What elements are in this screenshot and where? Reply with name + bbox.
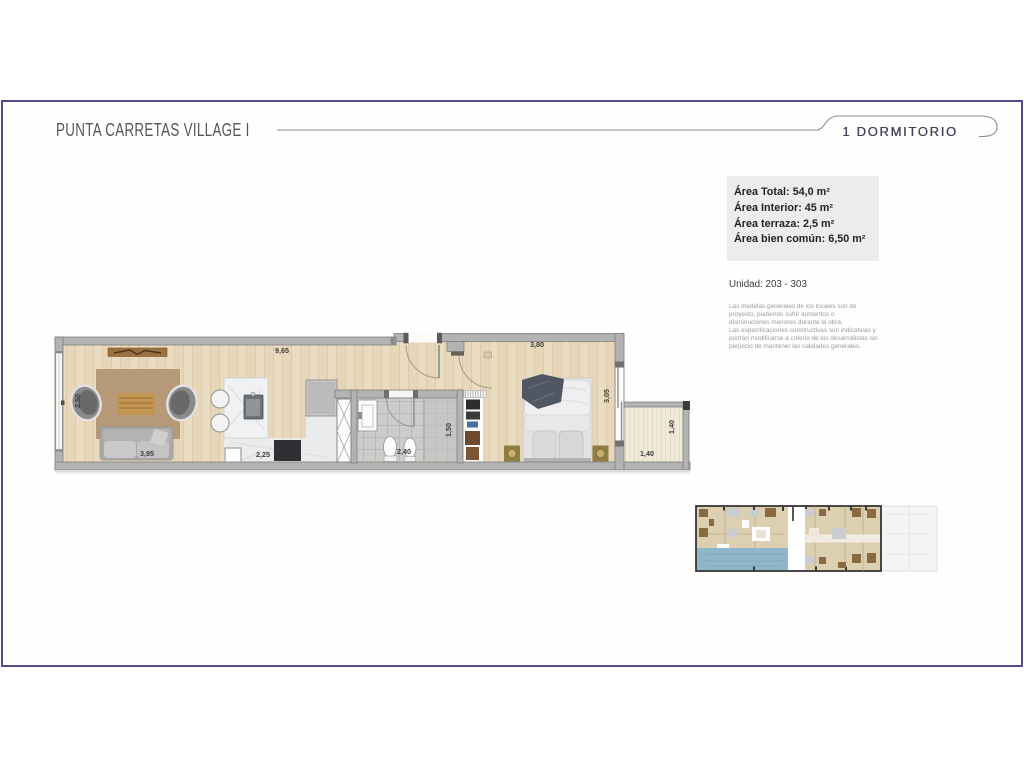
- svg-text:1,40: 1,40: [667, 420, 676, 434]
- svg-text:1,50: 1,50: [444, 423, 453, 437]
- svg-text:3,80: 3,80: [530, 340, 544, 349]
- svg-text:3,05: 3,05: [602, 389, 611, 403]
- svg-text:2,25: 2,25: [256, 450, 270, 459]
- svg-text:9,65: 9,65: [275, 346, 289, 355]
- svg-text:2,50: 2,50: [73, 394, 82, 408]
- svg-text:3,95: 3,95: [140, 449, 154, 458]
- svg-text:1,40: 1,40: [640, 449, 654, 458]
- svg-text:2,40: 2,40: [397, 447, 411, 456]
